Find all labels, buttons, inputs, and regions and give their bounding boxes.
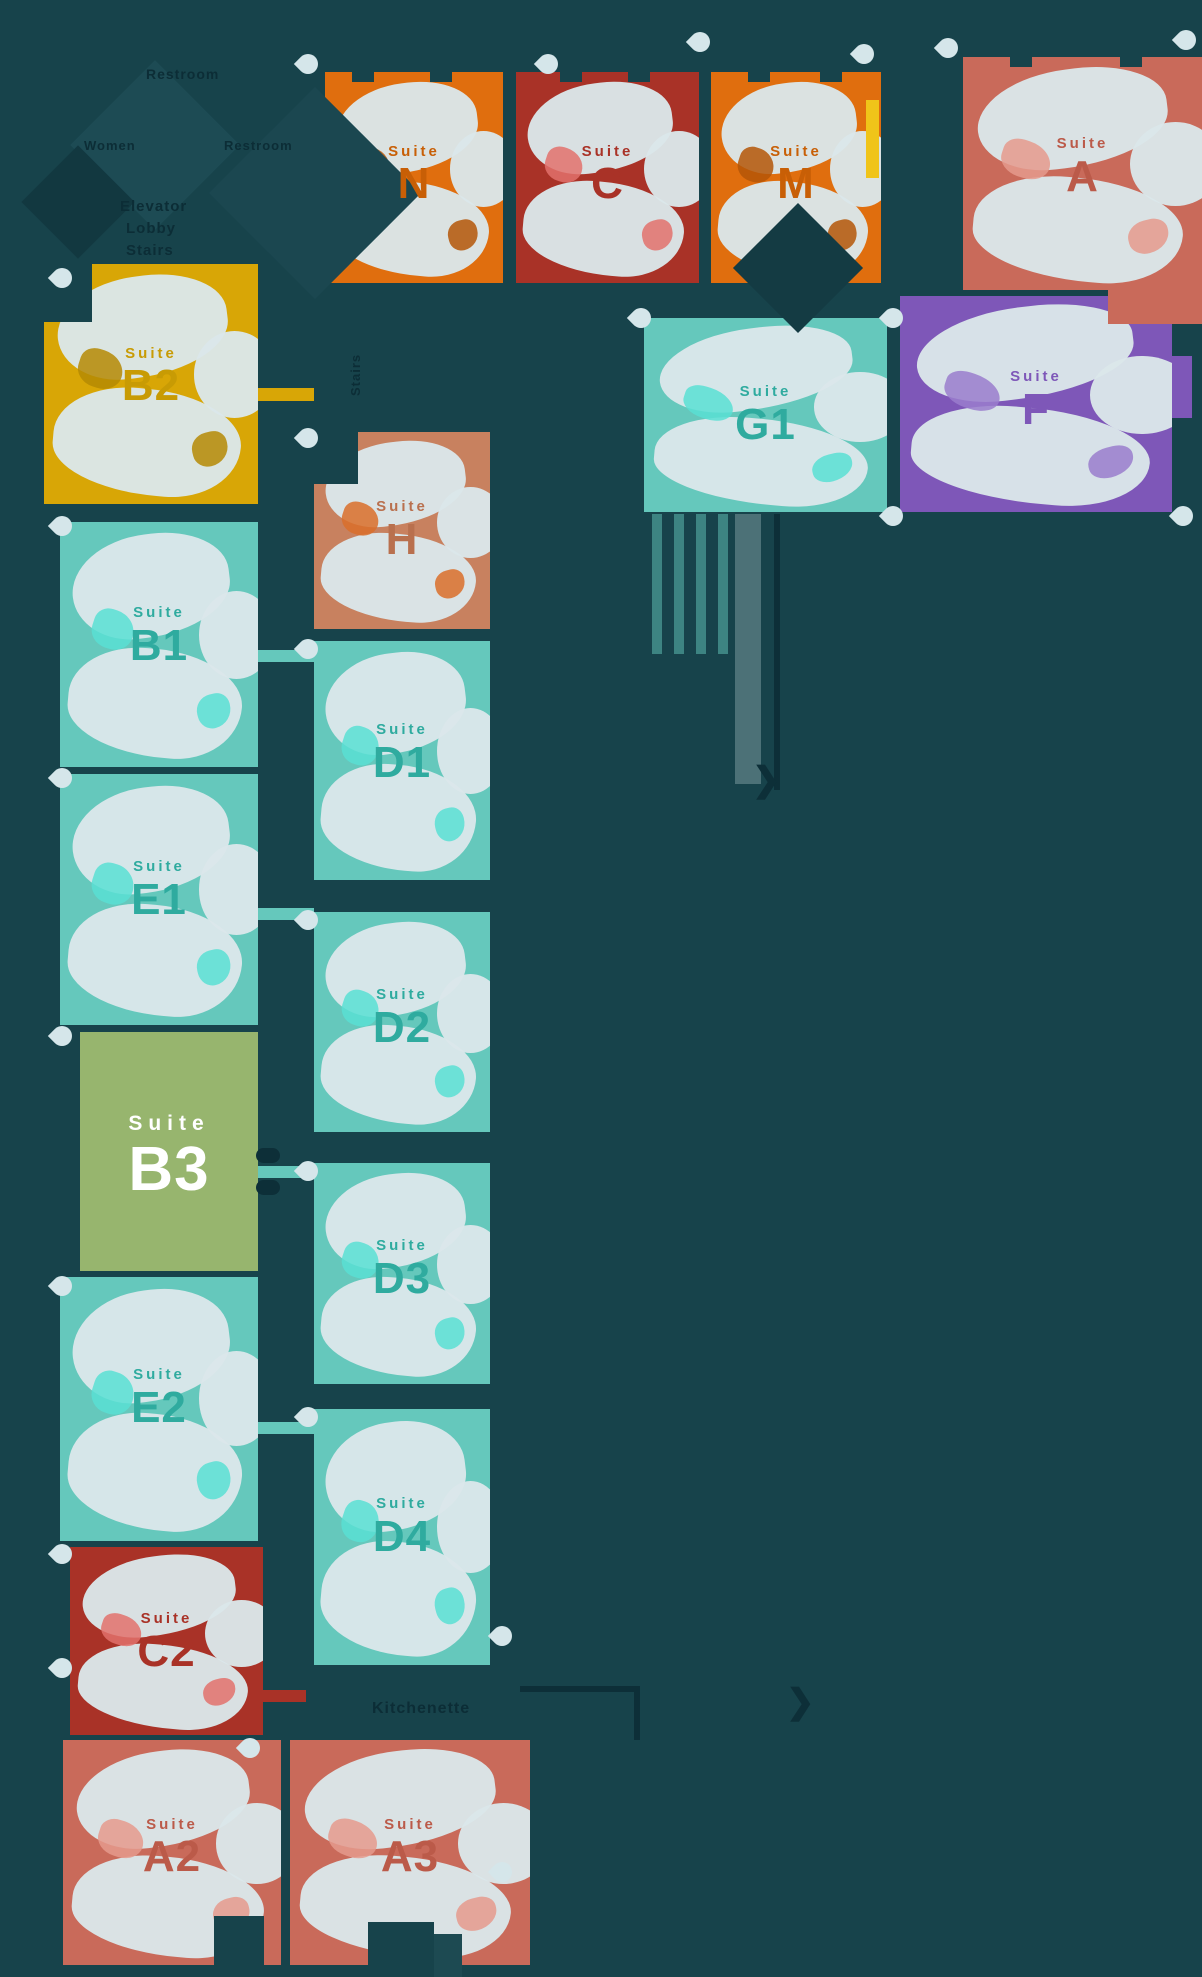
suite-d1[interactable]: SuiteD1 bbox=[314, 641, 490, 880]
floor-plan-canvas: SuiteNSuiteCSuiteMSuiteASuiteG1SuiteFSui… bbox=[0, 0, 1202, 1977]
suite-code: D3 bbox=[314, 1256, 490, 1302]
suite-label-word: Suite bbox=[325, 144, 503, 160]
suite-label-word: Suite bbox=[314, 499, 490, 515]
suite-b3[interactable]: SuiteB3 bbox=[80, 1032, 258, 1271]
suite-f[interactable]: SuiteF bbox=[900, 296, 1172, 512]
decor-shape bbox=[352, 70, 374, 82]
decor-shape bbox=[520, 1686, 638, 1692]
suite-c[interactable]: SuiteC bbox=[516, 72, 699, 283]
suite-code: D2 bbox=[314, 1005, 490, 1051]
decor-shape bbox=[258, 1690, 306, 1702]
suite-code: E2 bbox=[60, 1385, 258, 1431]
suite-b1[interactable]: SuiteB1 bbox=[60, 522, 258, 767]
suite-code: F bbox=[900, 387, 1172, 433]
suite-code: D4 bbox=[314, 1514, 490, 1560]
suite-label-word: Suite bbox=[314, 987, 490, 1003]
decor-shape bbox=[314, 432, 358, 484]
decor-shape bbox=[258, 388, 314, 401]
suite-label: SuiteD4 bbox=[314, 1496, 490, 1560]
suite-label: SuiteC2 bbox=[70, 1611, 263, 1675]
suite-label-word: Suite bbox=[290, 1817, 530, 1833]
decor-shape bbox=[256, 1180, 280, 1195]
suite-code: E1 bbox=[60, 877, 258, 923]
suite-code: B1 bbox=[60, 623, 258, 669]
suite-code: C2 bbox=[70, 1629, 263, 1675]
door-pin-icon bbox=[1172, 26, 1200, 54]
suite-label-word: Suite bbox=[70, 1611, 263, 1627]
decor-shape bbox=[674, 514, 684, 654]
decor-shape bbox=[1108, 288, 1202, 324]
suite-label-word: Suite bbox=[314, 722, 490, 738]
suite-d3[interactable]: SuiteD3 bbox=[314, 1163, 490, 1384]
suite-label-word: Suite bbox=[963, 136, 1202, 152]
suite-label-word: Suite bbox=[314, 1496, 490, 1512]
suite-code: N bbox=[325, 161, 503, 207]
suite-e2[interactable]: SuiteE2 bbox=[60, 1277, 258, 1541]
suite-label-word: Suite bbox=[314, 1238, 490, 1254]
decor-shape bbox=[214, 1916, 264, 1977]
suite-label: SuiteF bbox=[900, 369, 1172, 433]
suite-label: SuiteB1 bbox=[60, 605, 258, 669]
door-pin-icon bbox=[48, 1022, 76, 1050]
corridor-label: Stairs bbox=[348, 354, 363, 396]
chevron-right-icon: ❯ bbox=[786, 1682, 815, 1722]
suite-label-word: Suite bbox=[900, 369, 1172, 385]
decor-shape bbox=[430, 70, 452, 82]
suite-label-word: Suite bbox=[44, 346, 258, 362]
suite-code: B3 bbox=[80, 1137, 258, 1202]
corridor-label: Lobby bbox=[126, 220, 176, 237]
suite-code: G1 bbox=[644, 402, 887, 448]
door-pin-icon bbox=[850, 40, 878, 68]
suite-label: SuiteM bbox=[711, 144, 881, 208]
suite-code: C bbox=[516, 161, 699, 207]
suite-c2[interactable]: SuiteC2 bbox=[70, 1547, 263, 1735]
corridor-label: Women bbox=[84, 138, 136, 153]
suite-label: SuiteG1 bbox=[644, 384, 887, 448]
decor-shape bbox=[560, 70, 582, 82]
suite-code: A bbox=[963, 154, 1202, 200]
suite-label-word: Suite bbox=[80, 1113, 258, 1135]
decor-shape bbox=[1010, 55, 1032, 67]
decor-shape bbox=[735, 514, 761, 784]
suite-label-word: Suite bbox=[60, 1367, 258, 1383]
suite-label: SuiteN bbox=[325, 144, 503, 208]
suite-label: SuiteB2 bbox=[44, 346, 258, 410]
suite-label-word: Suite bbox=[63, 1817, 281, 1833]
suite-code: A2 bbox=[63, 1834, 281, 1880]
door-pin-icon bbox=[294, 50, 322, 78]
decor-shape bbox=[634, 1686, 640, 1740]
suite-label: SuiteH bbox=[314, 499, 490, 563]
corridor-label: Stairs bbox=[126, 242, 174, 259]
suite-label: SuiteC bbox=[516, 144, 699, 208]
decor-shape bbox=[774, 514, 780, 790]
suite-label-word: Suite bbox=[711, 144, 881, 160]
suite-code: B2 bbox=[44, 363, 258, 409]
suite-d2[interactable]: SuiteD2 bbox=[314, 912, 490, 1132]
suite-g1[interactable]: SuiteG1 bbox=[644, 318, 887, 512]
suite-label: SuiteB3 bbox=[80, 1113, 258, 1202]
suite-code: D1 bbox=[314, 740, 490, 786]
decor-shape bbox=[628, 70, 650, 82]
door-pin-icon bbox=[488, 1622, 516, 1650]
suite-label-word: Suite bbox=[516, 144, 699, 160]
decor-shape bbox=[368, 1922, 434, 1977]
corridor-label: Kitchenette bbox=[372, 1700, 470, 1718]
suite-label: SuiteA bbox=[963, 136, 1202, 200]
suite-label: SuiteD1 bbox=[314, 722, 490, 786]
decor-shape bbox=[718, 514, 728, 654]
suite-code: H bbox=[314, 517, 490, 563]
door-pin-icon bbox=[934, 34, 962, 62]
suite-code: M bbox=[711, 161, 881, 207]
suite-label-word: Suite bbox=[60, 859, 258, 875]
decor-shape bbox=[696, 514, 706, 654]
suite-label: SuiteE2 bbox=[60, 1367, 258, 1431]
decor-shape bbox=[820, 70, 842, 82]
corridor-label: Restroom bbox=[224, 138, 293, 153]
decor-shape bbox=[748, 70, 770, 82]
decor-shape bbox=[256, 1148, 280, 1163]
decor-shape bbox=[652, 514, 662, 654]
door-pin-icon bbox=[686, 28, 714, 56]
suite-a[interactable]: SuiteA bbox=[963, 57, 1202, 290]
door-pin-icon bbox=[1169, 502, 1197, 530]
suite-d4[interactable]: SuiteD4 bbox=[314, 1409, 490, 1665]
suite-label: SuiteE1 bbox=[60, 859, 258, 923]
decor-shape bbox=[1172, 356, 1192, 418]
suite-label: SuiteD3 bbox=[314, 1238, 490, 1302]
suite-label-word: Suite bbox=[60, 605, 258, 621]
corridor-label: Elevator bbox=[120, 198, 187, 215]
suite-e1[interactable]: SuiteE1 bbox=[60, 774, 258, 1025]
chevron-right-icon: ❯ bbox=[752, 760, 781, 800]
suite-label: SuiteD2 bbox=[314, 987, 490, 1051]
suite-label: SuiteA2 bbox=[63, 1817, 281, 1881]
decor-shape bbox=[1120, 55, 1142, 67]
corridor-label: Restroom bbox=[146, 66, 219, 82]
suite-label-word: Suite bbox=[644, 384, 887, 400]
